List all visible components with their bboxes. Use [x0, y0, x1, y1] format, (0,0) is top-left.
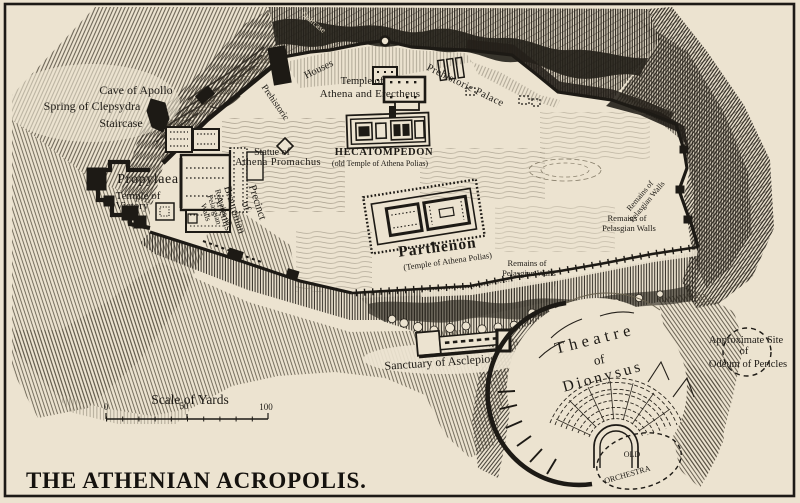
svg-text:Athena Promachus: Athena Promachus — [235, 157, 321, 168]
svg-text:100: 100 — [259, 402, 273, 412]
svg-text:Approximate Site: Approximate Site — [709, 335, 784, 346]
svg-text:Staircase: Staircase — [99, 116, 142, 130]
svg-text:Victory: Victory — [116, 200, 149, 212]
svg-text:Remains of: Remains of — [608, 213, 647, 223]
svg-text:Pelasgian Walls: Pelasgian Walls — [502, 268, 556, 278]
svg-text:(?): (?) — [156, 119, 165, 128]
svg-text:Spring of Clepsydra: Spring of Clepsydra — [44, 99, 141, 113]
svg-text:of: of — [740, 346, 749, 357]
svg-text:Remains of: Remains of — [508, 258, 547, 268]
svg-text:OLD: OLD — [624, 450, 641, 459]
svg-text:Odeum of Pericles: Odeum of Pericles — [709, 359, 787, 370]
svg-text:Cave of Apollo: Cave of Apollo — [99, 83, 172, 97]
svg-text:Athena and Erectheus: Athena and Erectheus — [320, 88, 421, 100]
svg-text:HECATOMPEDON: HECATOMPEDON — [335, 147, 433, 158]
svg-text:Scale of Yards: Scale of Yards — [151, 392, 229, 407]
svg-text:(old Temple of Athena Polias): (old Temple of Athena Polias) — [332, 159, 429, 168]
svg-text:0: 0 — [104, 402, 109, 412]
svg-text:50: 50 — [180, 401, 190, 411]
svg-text:Pelasgian Walls: Pelasgian Walls — [602, 223, 656, 233]
svg-text:Temple of: Temple of — [341, 76, 384, 87]
svg-text:Propylaea: Propylaea — [117, 172, 179, 187]
svg-text:THE ATHENIAN ACROPOLIS.: THE ATHENIAN ACROPOLIS. — [26, 468, 367, 493]
